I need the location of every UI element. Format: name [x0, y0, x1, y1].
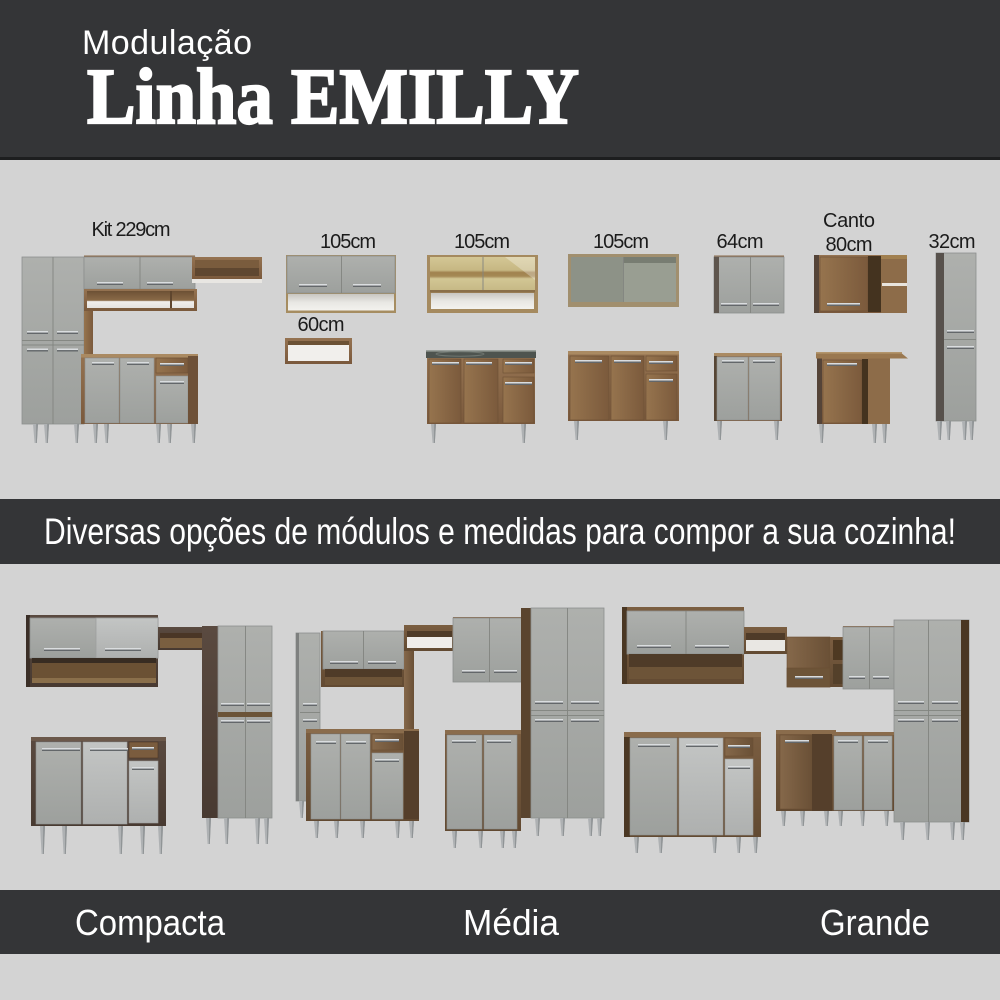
svg-text:80cm: 80cm [826, 234, 873, 256]
svg-text:Média: Média [463, 902, 560, 943]
svg-text:105cm: 105cm [593, 231, 649, 253]
svg-text:60cm: 60cm [298, 314, 345, 336]
svg-text:Diversas opções de módulos e m: Diversas opções de módulos e medidas par… [44, 511, 956, 552]
svg-text:Kit 229cm: Kit 229cm [92, 219, 171, 241]
svg-text:64cm: 64cm [717, 231, 764, 253]
svg-text:105cm: 105cm [454, 231, 510, 253]
svg-text:Linha EMILLY: Linha EMILLY [87, 54, 579, 141]
svg-text:32cm: 32cm [929, 231, 976, 253]
svg-text:105cm: 105cm [320, 231, 376, 253]
svg-text:Canto: Canto [823, 210, 875, 232]
svg-text:Compacta: Compacta [75, 902, 226, 943]
svg-text:Grande: Grande [820, 902, 930, 943]
